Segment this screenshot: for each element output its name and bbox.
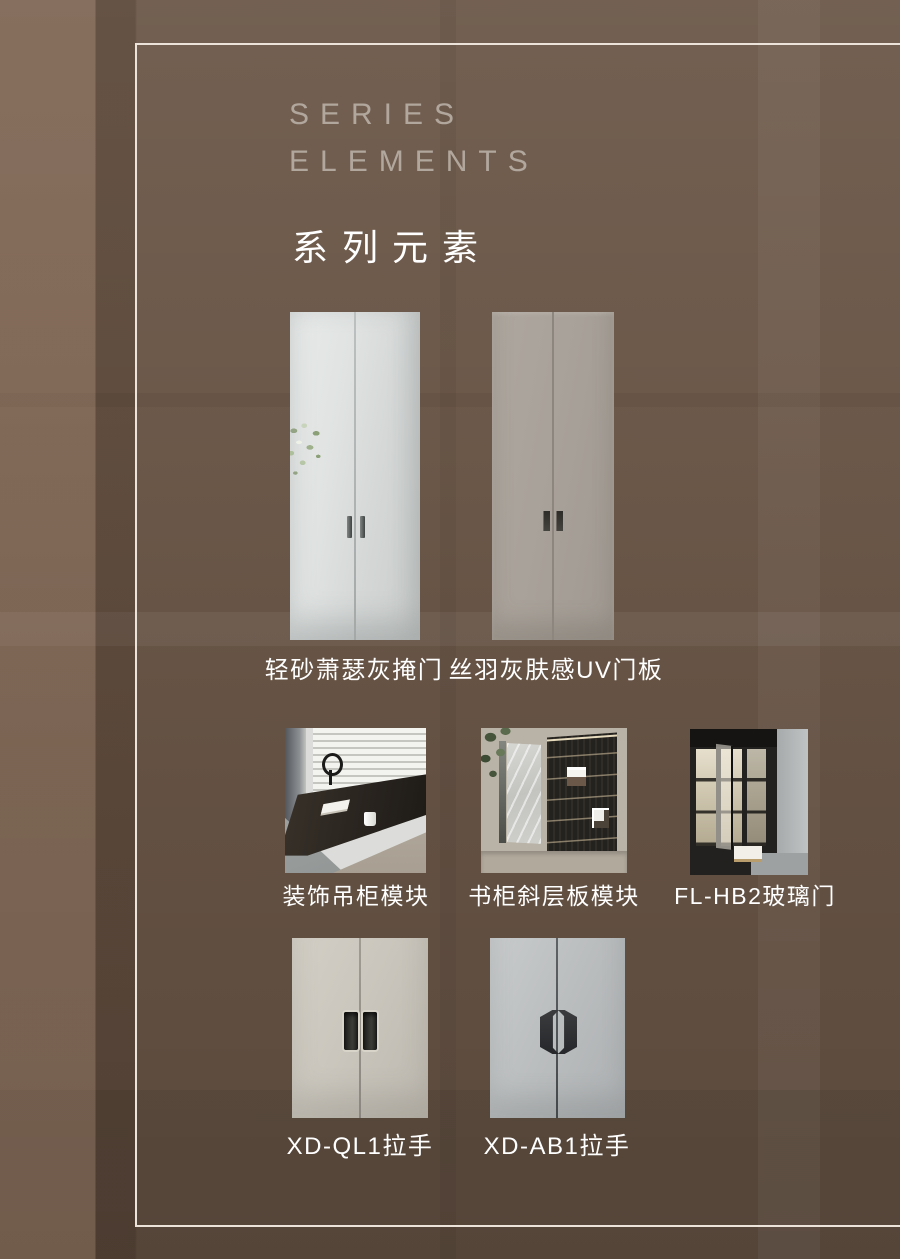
frame-border-top	[135, 43, 900, 45]
title-chinese: 系列元素	[292, 219, 492, 271]
product-image-handle-xd-ab1	[490, 938, 625, 1118]
base-cabinet	[481, 851, 627, 873]
headphones	[322, 753, 343, 776]
product-image-door-silk-feather-gray-uv	[492, 312, 614, 640]
product-caption-handle-xd-ql1: XD-QL1拉手	[287, 1126, 434, 1161]
product-image-bookcase-slanted-shelf	[481, 728, 627, 873]
plant-decoration	[290, 418, 338, 482]
display-box	[734, 846, 762, 862]
door-split-line	[359, 938, 361, 1118]
top-shelf-shadow	[690, 729, 777, 747]
product-caption-glass-door-fl-hb2: FL-HB2玻璃门	[674, 877, 836, 911]
product-caption-decor-hanging-cabinet: 装饰吊柜模块	[283, 877, 430, 911]
mug	[364, 812, 376, 826]
door-handle-left	[347, 516, 352, 538]
door-handle-right	[360, 516, 365, 538]
door-split-line	[354, 312, 356, 640]
lit-shelf-cell	[696, 749, 716, 845]
lit-shelf-cell	[747, 749, 766, 845]
plant-decoration	[481, 728, 528, 783]
door-split-line	[552, 312, 554, 640]
product-image-handle-xd-ql1	[292, 938, 428, 1118]
door-handle-left	[543, 511, 550, 531]
poster-background: SERIES ELEMENTS 系列元素 轻砂萧瑟灰掩门 丝羽灰肤感UV门板 装…	[0, 0, 900, 1259]
product-caption-bookcase-slanted-shelf: 书柜斜层板模块	[468, 877, 640, 911]
title-english-line2: ELEMENTS	[289, 147, 539, 177]
recessed-handle-left	[344, 1012, 358, 1050]
door-handle-right	[556, 511, 563, 531]
product-caption-door-silk-feather-gray-uv: 丝羽灰肤感UV门板	[449, 650, 664, 685]
recessed-handle-right	[363, 1012, 377, 1050]
open-glass-door	[716, 744, 733, 850]
bookshelf-unit	[547, 733, 617, 857]
product-image-decor-hanging-cabinet	[285, 728, 426, 873]
door-split-line	[556, 938, 558, 1118]
frame-border-left	[135, 43, 137, 1227]
product-image-door-light-sand-gray	[290, 312, 420, 640]
headphone-stand	[329, 770, 332, 785]
framed-photo	[567, 767, 586, 786]
bracket-handle-right	[558, 1010, 577, 1054]
product-image-glass-door-fl-hb2	[690, 729, 808, 875]
framed-photo	[592, 808, 610, 828]
product-caption-handle-xd-ab1: XD-AB1拉手	[484, 1126, 631, 1161]
side-panel	[777, 729, 808, 853]
frame-border-bottom	[135, 1225, 900, 1227]
product-caption-door-light-sand-gray: 轻砂萧瑟灰掩门	[265, 650, 444, 685]
title-english-line1: SERIES	[289, 100, 465, 130]
